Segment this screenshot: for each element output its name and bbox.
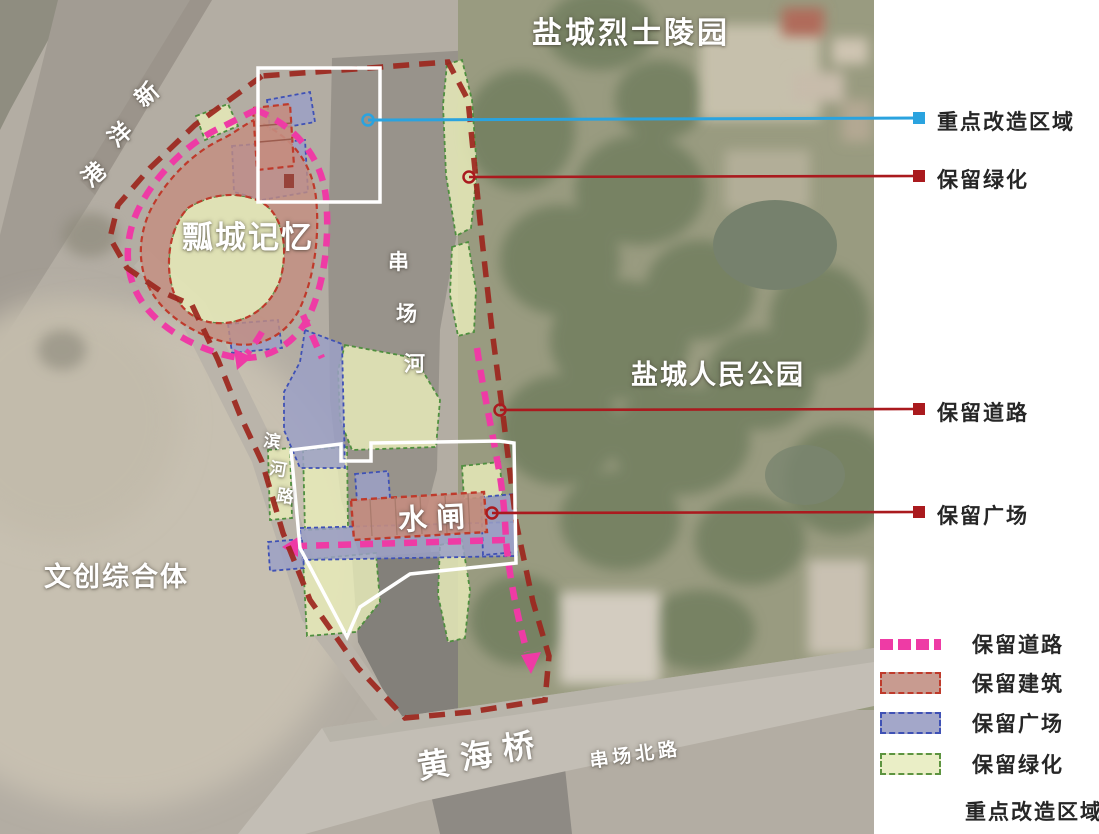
label-chuanchang-river-char3: 河 [404, 348, 425, 378]
label-chuanchang-river-char2: 场 [396, 298, 417, 328]
road-callout-marker [913, 403, 925, 415]
legend-item-key-renovation-area: 重点改造区域 [965, 796, 1099, 826]
legend-label: 重点改造区域 [965, 796, 1099, 826]
legend-item-preserved-plaza: 保留广场 [880, 708, 1064, 738]
legend-item-preserved-road: 保留道路 [880, 629, 1064, 659]
callout-plaza-label: 保留广场 [937, 500, 1029, 530]
label-piaocheng-memory: 瓢城记忆 [182, 212, 314, 257]
plaza-callout-marker [913, 506, 925, 518]
preserved-road-swatch [880, 639, 941, 650]
preserved-plaza-swatch [880, 712, 941, 734]
legend-label: 保留绿化 [972, 749, 1064, 779]
label-martyrs-cemetery: 盐城烈士陵园 [532, 8, 730, 52]
label-water-gate: 水闸 [397, 493, 475, 539]
preserved-building-swatch [880, 672, 941, 694]
greenery-callout-marker [913, 170, 925, 182]
preserved-greenery-swatch [880, 753, 941, 775]
key-renovation-callout-marker [913, 112, 925, 124]
legend-label: 保留广场 [972, 708, 1064, 738]
label-peoples-park: 盐城人民公园 [631, 353, 805, 392]
callout-greenery-label: 保留绿化 [937, 164, 1029, 194]
legend-item-preserved-greenery: 保留绿化 [880, 749, 1064, 779]
callout-key-renovation-label: 重点改造区域 [937, 106, 1075, 136]
legend-item-preserved-building: 保留建筑 [880, 668, 1064, 698]
callout-road-label: 保留道路 [937, 397, 1029, 427]
label-cultural-complex: 文创综合体 [44, 555, 189, 594]
legend-label: 保留道路 [972, 629, 1064, 659]
legend-label: 保留建筑 [972, 668, 1064, 698]
planning-map-page: 盐城烈士陵园 新 洋 港 瓢城记忆 串 场 河 盐城人民公园 滨 河 路 水闸 … [0, 0, 1099, 834]
label-chuanchang-river-char1: 串 [388, 246, 409, 276]
